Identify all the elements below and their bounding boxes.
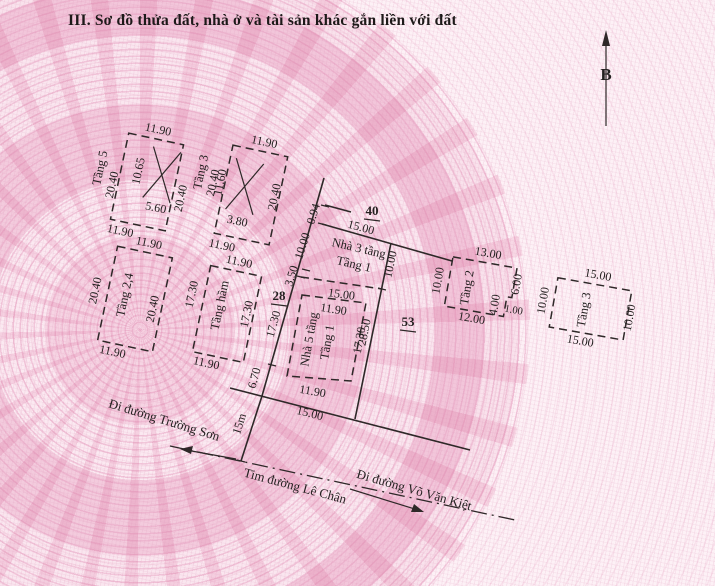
- dim-label: 10.65: [128, 156, 147, 185]
- dim-label: 15.00: [295, 403, 325, 423]
- floor-tang24: 11.90 11.90 Tầng 2,4 20.40 20.40: [75, 225, 176, 366]
- dim-label: 11.90: [192, 353, 221, 372]
- dim-label: 11.90: [225, 252, 254, 271]
- dim-label: 20.40: [264, 182, 283, 211]
- floor-tang3-cross-2: [226, 158, 264, 215]
- certificate-diagram-page: III. Sơ đồ thửa đất, nhà ở và tài sản kh…: [0, 0, 715, 586]
- floor-name-label: Tầng hầm: [208, 279, 232, 331]
- north-arrow-icon: B: [600, 30, 611, 126]
- dim-label: 10.00: [534, 286, 552, 315]
- road-boundary-line: [230, 388, 470, 450]
- north-label: B: [600, 65, 611, 84]
- dim-label: 11.90: [106, 221, 135, 240]
- house5-name-line2: Tầng 1: [317, 324, 337, 361]
- dim-label: 11.90: [298, 382, 327, 400]
- setback-label: 15m: [229, 411, 249, 436]
- dim-label: 0.94: [303, 202, 323, 226]
- dim-label: 15.00: [584, 265, 613, 283]
- dim-label: 10.00: [428, 266, 446, 295]
- dim-label: 17.30: [182, 279, 201, 308]
- dim-label: 11.90: [250, 132, 279, 151]
- dim-label: 11.90: [135, 233, 164, 252]
- north-arrow-head: [602, 30, 610, 46]
- floor-name-label: Tầng 2: [457, 269, 477, 306]
- truong-son-arrow-head: [180, 446, 193, 454]
- truong-son-arrow-shaft: [186, 450, 236, 459]
- neighbor-plot-number-right: 53: [402, 314, 416, 329]
- main-plot: 0.94 10.00 3.50 17.30 6.70 10.00 28.50 1…: [229, 178, 470, 462]
- dim-label: 11.90: [319, 300, 347, 318]
- dim-label: 6.70: [245, 366, 264, 390]
- dim-label: 3.50: [281, 264, 301, 288]
- underline: [271, 304, 287, 306]
- floor-tang5-outline: [110, 133, 183, 231]
- floor-name-label: Tầng 2,4: [113, 271, 136, 318]
- dim-label: 17.30: [237, 299, 256, 328]
- floor-tangham: 11.90 11.90 Tầng hầm 17.30 17.30: [170, 245, 265, 377]
- dim-label: 6.00: [507, 273, 524, 296]
- dim-label: 12.00: [457, 309, 486, 327]
- dim-label: 4.00: [486, 293, 503, 316]
- floor-tang3-right: 15.00 15.00 Tầng 3 10.00 10.00: [529, 258, 644, 356]
- dim-label: 17.30: [350, 326, 368, 355]
- street-label-le-chan: Tim đường Lê Chân: [242, 465, 348, 507]
- tick: [268, 364, 276, 366]
- neighbor-plot-number-left: 28: [273, 288, 287, 303]
- dim-label: 1.00: [504, 304, 524, 318]
- neighbor-plot-number-top: 40: [366, 203, 379, 218]
- underline: [400, 330, 416, 332]
- dim-label: 13.00: [474, 244, 503, 262]
- floor-name-label: Tầng 3: [574, 291, 594, 328]
- dim-label: 10.00: [292, 231, 313, 261]
- plot-top-stub: [325, 205, 351, 212]
- dim-label: 3.80: [226, 212, 249, 230]
- plot-diagram: B 11.90 11.90 Tầng 5 20.40 20.40 10.65 5…: [0, 0, 715, 586]
- dim-label: 11.90: [144, 120, 173, 139]
- dim-label: 20.40: [85, 276, 104, 305]
- dim-label: 5.60: [144, 198, 167, 216]
- floor-tang5: 11.90 11.90 Tầng 5 20.40 20.40 10.65 5.6…: [80, 111, 202, 250]
- tick: [302, 269, 310, 271]
- floor-tang3-left: 11.90 11.90 Tầng 3 20.40 20.40 11.60 3.8…: [178, 122, 293, 262]
- vo-van-kiet-arrow-head: [411, 504, 424, 512]
- floor-tang2-right: 13.00 12.00 Tầng 2 10.00 6.00 4.00 1.00: [424, 237, 533, 333]
- dim-label: 20.40: [171, 184, 190, 213]
- street-label-truong-son: Đi đường Trường Sơn: [107, 396, 222, 444]
- dim-label: 10.00: [620, 303, 638, 332]
- dim-label: 15.00: [327, 285, 356, 303]
